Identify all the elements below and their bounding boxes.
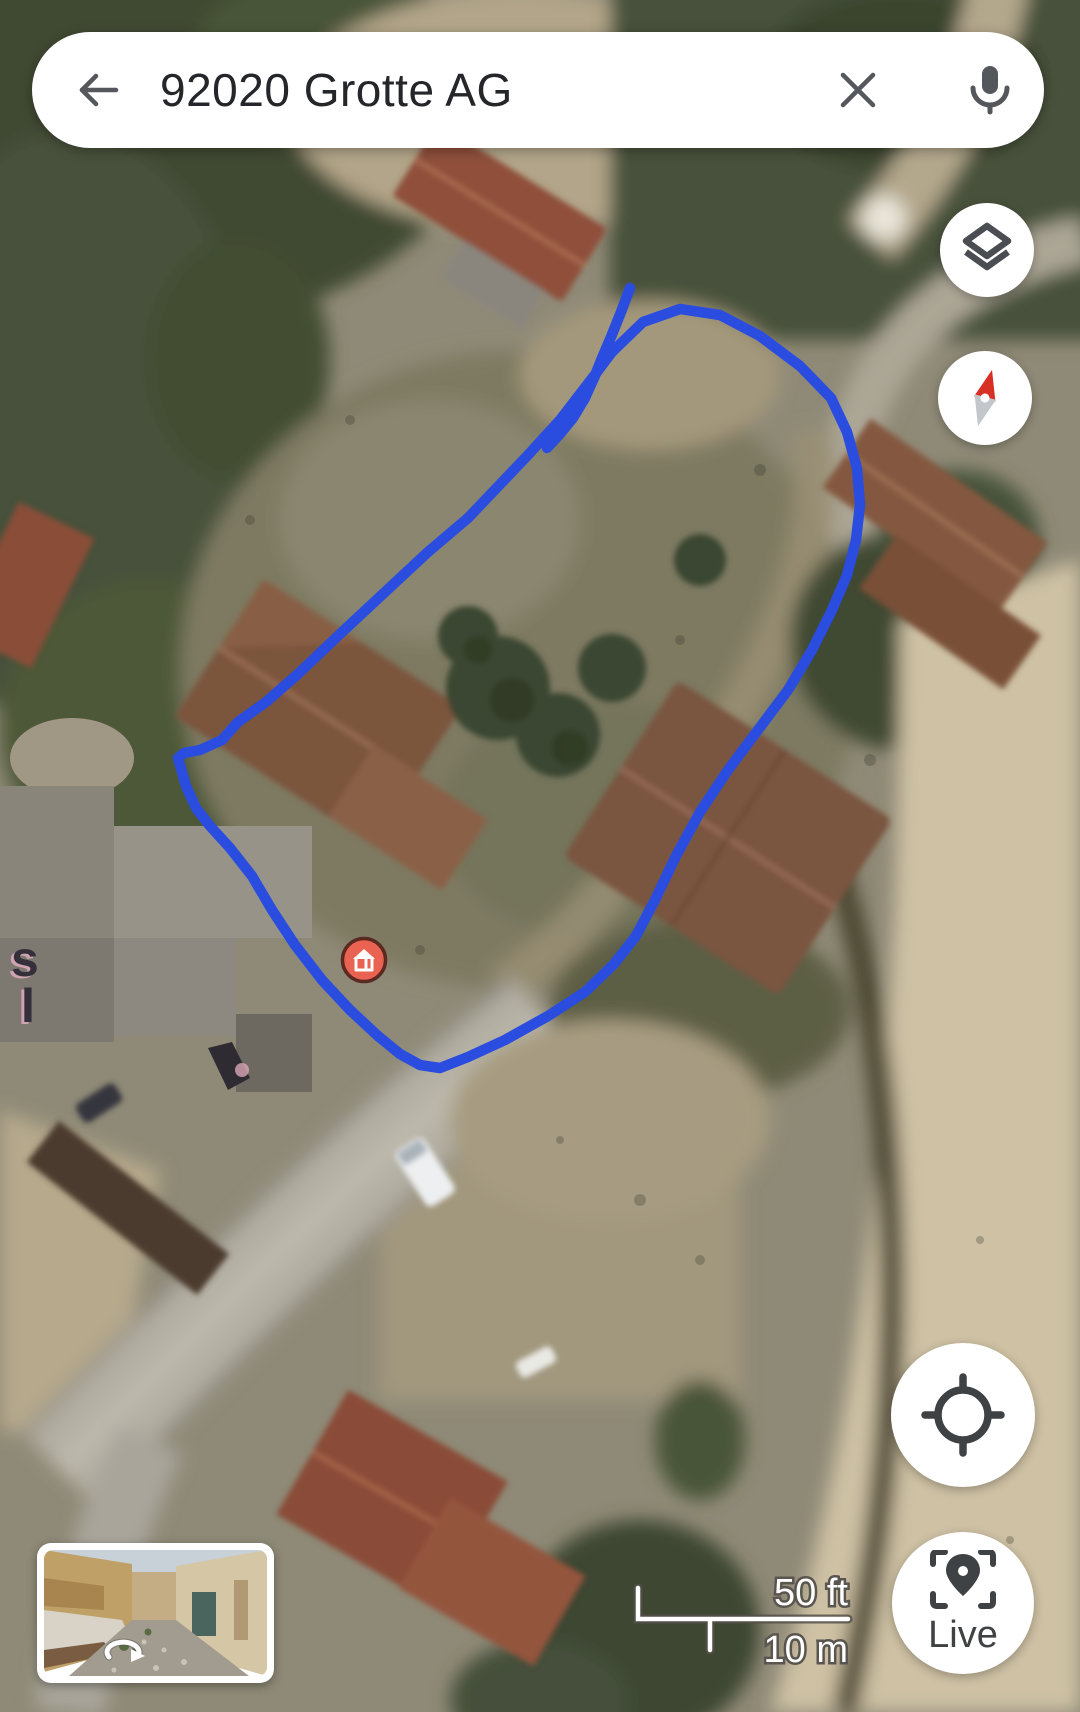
layers-button[interactable] xyxy=(940,203,1034,297)
scale-metric: 10 m xyxy=(764,1629,848,1671)
live-button-label: Live xyxy=(928,1614,998,1657)
search-input[interactable]: 92020 Grotte AG xyxy=(160,32,513,148)
clear-search-icon[interactable] xyxy=(836,68,880,112)
back-arrow-icon[interactable] xyxy=(74,66,122,114)
my-location-button[interactable] xyxy=(891,1343,1035,1487)
scale-imperial: 50 ft xyxy=(774,1572,848,1614)
microphone-icon[interactable] xyxy=(960,60,1020,120)
layers-icon xyxy=(959,222,1015,278)
home-marker[interactable] xyxy=(343,939,386,982)
search-bar[interactable]: 92020 Grotte AG xyxy=(32,32,1044,148)
ar-pin-icon xyxy=(927,1550,999,1616)
compass-needle-icon xyxy=(951,364,1019,432)
svg-text:I: I xyxy=(21,977,35,1033)
street-view-rotate-icon xyxy=(95,1631,151,1667)
street-view-preview[interactable] xyxy=(37,1543,274,1683)
crosshair-icon xyxy=(918,1370,1008,1460)
street-view-photo xyxy=(44,1550,267,1676)
compass-button[interactable] xyxy=(938,351,1032,445)
google-maps-screen: s s I I 50 ft 10 m 92020 Grotte AG xyxy=(0,0,1080,1712)
live-view-button[interactable]: Live xyxy=(892,1532,1034,1674)
